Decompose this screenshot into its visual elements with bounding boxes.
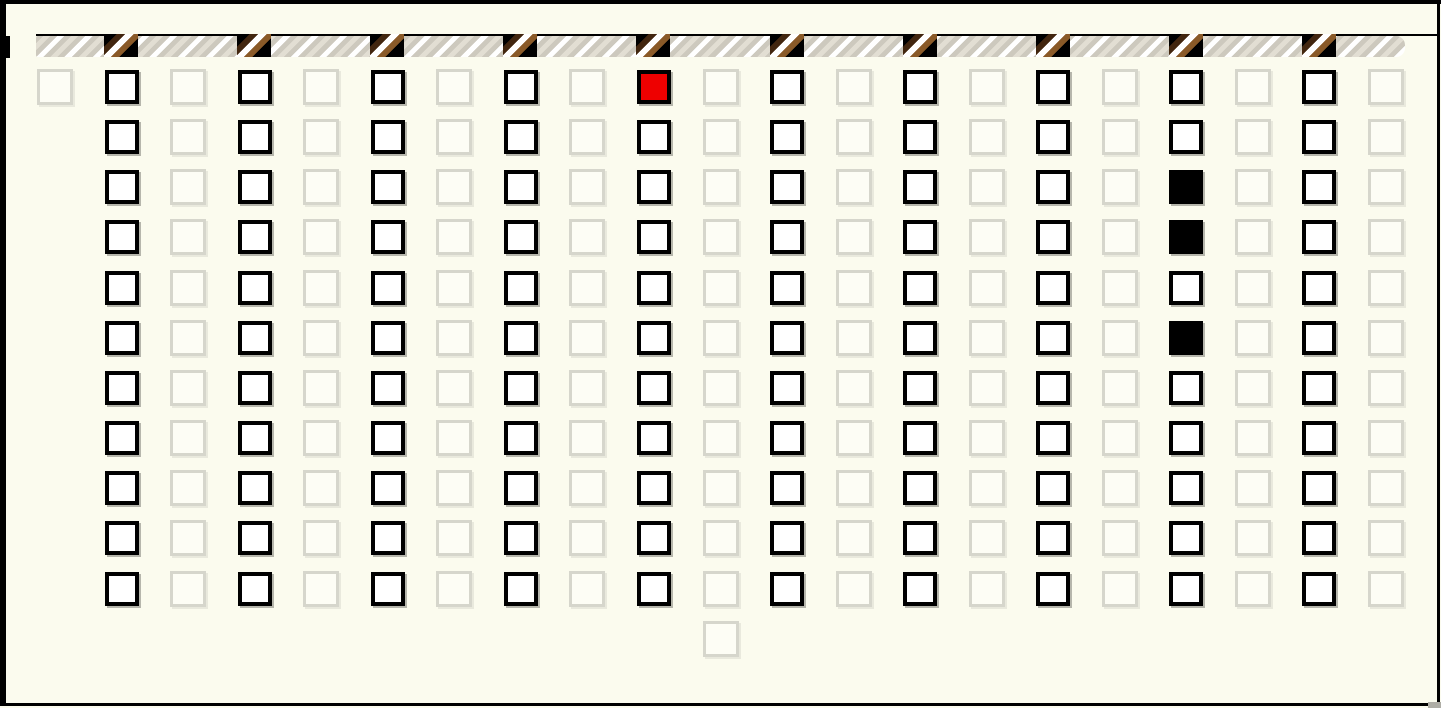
- active-cell[interactable]: [637, 371, 671, 405]
- inactive-cell[interactable]: [569, 370, 605, 406]
- active-cell[interactable]: [903, 471, 937, 505]
- inactive-cell[interactable]: [170, 370, 206, 406]
- active-cell[interactable]: [1169, 572, 1203, 606]
- inactive-cell[interactable]: [170, 219, 206, 255]
- active-cell[interactable]: [903, 220, 937, 254]
- inactive-cell[interactable]: [969, 119, 1005, 155]
- inactive-cell[interactable]: [1102, 470, 1138, 506]
- inactive-cell[interactable]: [969, 470, 1005, 506]
- active-cell[interactable]: [1036, 170, 1070, 204]
- active-cell[interactable]: [238, 521, 272, 555]
- active-cell[interactable]: [770, 120, 804, 154]
- dispenser-slot: [770, 34, 804, 57]
- inactive-cell[interactable]: [836, 169, 872, 205]
- inactive-cell[interactable]: [1235, 520, 1271, 556]
- active-cell[interactable]: [504, 421, 538, 455]
- active-cell[interactable]: [371, 70, 405, 104]
- dispenser-slot: [104, 34, 138, 57]
- active-cell[interactable]: [504, 120, 538, 154]
- active-cell[interactable]: [637, 271, 671, 305]
- active-cell[interactable]: [1169, 421, 1203, 455]
- corner-notch: [1428, 702, 1441, 708]
- inactive-cell[interactable]: [569, 571, 605, 607]
- inactive-cell[interactable]: [1102, 320, 1138, 356]
- inactive-cell[interactable]: [703, 420, 739, 456]
- active-cell[interactable]: [637, 521, 671, 555]
- active-cell[interactable]: [1036, 421, 1070, 455]
- inactive-cell[interactable]: [569, 169, 605, 205]
- inactive-cell[interactable]: [303, 69, 339, 105]
- inactive-cell[interactable]: [170, 470, 206, 506]
- inactive-cell[interactable]: [1235, 219, 1271, 255]
- active-cell[interactable]: [504, 471, 538, 505]
- inactive-cell[interactable]: [703, 270, 739, 306]
- inactive-cell[interactable]: [436, 420, 472, 456]
- inactive-cell[interactable]: [1235, 169, 1271, 205]
- inactive-cell[interactable]: [1102, 370, 1138, 406]
- inactive-cell[interactable]: [436, 470, 472, 506]
- active-cell[interactable]: [903, 70, 937, 104]
- inactive-cell[interactable]: [703, 520, 739, 556]
- active-cell[interactable]: [770, 70, 804, 104]
- inactive-cell[interactable]: [1235, 320, 1271, 356]
- inactive-cell[interactable]: [1235, 69, 1271, 105]
- playfield: [0, 0, 1441, 708]
- inactive-cell[interactable]: [1368, 571, 1404, 607]
- active-cell[interactable]: [504, 321, 538, 355]
- inactive-cell[interactable]: [303, 169, 339, 205]
- filled-black-cell[interactable]: [1169, 170, 1203, 204]
- inactive-cell[interactable]: [1368, 169, 1404, 205]
- active-cell[interactable]: [637, 572, 671, 606]
- inactive-cell[interactable]: [436, 119, 472, 155]
- inactive-cell[interactable]: [170, 169, 206, 205]
- inactive-cell[interactable]: [569, 69, 605, 105]
- inactive-cell[interactable]: [37, 69, 73, 105]
- inactive-cell[interactable]: [303, 571, 339, 607]
- app-window: [0, 0, 1441, 708]
- inactive-cell[interactable]: [1368, 420, 1404, 456]
- dispenser-slot: [237, 34, 271, 57]
- inactive-cell[interactable]: [170, 571, 206, 607]
- inactive-cell[interactable]: [1368, 320, 1404, 356]
- active-cell[interactable]: [1302, 70, 1336, 104]
- active-cell[interactable]: [1169, 521, 1203, 555]
- active-cell[interactable]: [105, 321, 139, 355]
- active-cell[interactable]: [238, 70, 272, 104]
- active-cell[interactable]: [371, 371, 405, 405]
- active-cell[interactable]: [770, 572, 804, 606]
- inactive-cell[interactable]: [703, 219, 739, 255]
- inactive-cell[interactable]: [969, 69, 1005, 105]
- active-cell[interactable]: [504, 271, 538, 305]
- active-cell[interactable]: [770, 421, 804, 455]
- inactive-cell[interactable]: [569, 119, 605, 155]
- inactive-cell[interactable]: [436, 270, 472, 306]
- inactive-cell[interactable]: [170, 320, 206, 356]
- active-cell[interactable]: [1302, 170, 1336, 204]
- active-cell[interactable]: [1302, 421, 1336, 455]
- active-cell[interactable]: [1302, 371, 1336, 405]
- inactive-cell[interactable]: [1235, 370, 1271, 406]
- window-frame-top: [0, 0, 1441, 4]
- inactive-cell[interactable]: [303, 270, 339, 306]
- active-cell[interactable]: [238, 471, 272, 505]
- active-cell[interactable]: [504, 220, 538, 254]
- active-cell[interactable]: [1036, 471, 1070, 505]
- active-cell[interactable]: [637, 170, 671, 204]
- active-cell[interactable]: [1302, 521, 1336, 555]
- active-cell[interactable]: [238, 271, 272, 305]
- inactive-cell[interactable]: [836, 320, 872, 356]
- active-cell[interactable]: [1036, 220, 1070, 254]
- active-cell[interactable]: [238, 170, 272, 204]
- active-cell[interactable]: [1036, 321, 1070, 355]
- inactive-cell[interactable]: [703, 119, 739, 155]
- inactive-cell[interactable]: [703, 470, 739, 506]
- active-cell[interactable]: [1036, 70, 1070, 104]
- inactive-cell[interactable]: [170, 420, 206, 456]
- inactive-cell[interactable]: [1102, 69, 1138, 105]
- active-cell[interactable]: [238, 421, 272, 455]
- active-cell[interactable]: [504, 371, 538, 405]
- dispenser-slot: [1036, 34, 1070, 57]
- window-frame-bottom: [0, 703, 1438, 706]
- inactive-cell[interactable]: [569, 270, 605, 306]
- active-cell[interactable]: [637, 421, 671, 455]
- active-cell[interactable]: [1036, 120, 1070, 154]
- inactive-cell[interactable]: [303, 520, 339, 556]
- active-cell[interactable]: [770, 271, 804, 305]
- active-cell[interactable]: [637, 220, 671, 254]
- inactive-cell[interactable]: [303, 470, 339, 506]
- inactive-cell[interactable]: [969, 270, 1005, 306]
- inactive-cell[interactable]: [703, 69, 739, 105]
- inactive-cell[interactable]: [569, 320, 605, 356]
- active-cell[interactable]: [770, 371, 804, 405]
- inactive-cell[interactable]: [1368, 470, 1404, 506]
- inactive-cell[interactable]: [436, 69, 472, 105]
- active-cell[interactable]: [504, 70, 538, 104]
- inactive-cell[interactable]: [1368, 270, 1404, 306]
- dispenser-slot: [370, 34, 404, 57]
- active-cell[interactable]: [1169, 70, 1203, 104]
- inactive-cell[interactable]: [569, 219, 605, 255]
- active-cell[interactable]: [1169, 471, 1203, 505]
- active-cell[interactable]: [1169, 271, 1203, 305]
- inactive-cell[interactable]: [170, 270, 206, 306]
- inactive-cell[interactable]: [569, 470, 605, 506]
- inactive-cell[interactable]: [703, 370, 739, 406]
- active-cell[interactable]: [105, 220, 139, 254]
- active-cell[interactable]: [371, 572, 405, 606]
- active-cell[interactable]: [637, 471, 671, 505]
- active-cell[interactable]: [105, 572, 139, 606]
- inactive-cell[interactable]: [303, 219, 339, 255]
- inactive-cell[interactable]: [969, 219, 1005, 255]
- active-cell[interactable]: [903, 421, 937, 455]
- active-cell[interactable]: [637, 120, 671, 154]
- inactive-cell[interactable]: [836, 470, 872, 506]
- filled-black-cell[interactable]: [1169, 321, 1203, 355]
- active-cell[interactable]: [105, 471, 139, 505]
- inactive-cell[interactable]: [1368, 69, 1404, 105]
- active-cell[interactable]: [238, 572, 272, 606]
- inactive-cell[interactable]: [969, 520, 1005, 556]
- active-cell[interactable]: [1302, 271, 1336, 305]
- filled-black-cell[interactable]: [1169, 220, 1203, 254]
- active-cell[interactable]: [1302, 471, 1336, 505]
- active-cell[interactable]: [238, 220, 272, 254]
- dispenser-slot: [1169, 34, 1203, 57]
- inactive-cell[interactable]: [836, 571, 872, 607]
- active-cell[interactable]: [770, 471, 804, 505]
- active-cell[interactable]: [371, 220, 405, 254]
- dispenser-slot: [903, 34, 937, 57]
- inactive-cell[interactable]: [303, 370, 339, 406]
- inactive-cell[interactable]: [969, 420, 1005, 456]
- red-piece-cell[interactable]: [637, 70, 671, 104]
- active-cell[interactable]: [770, 321, 804, 355]
- active-cell[interactable]: [770, 521, 804, 555]
- inactive-cell[interactable]: [1235, 420, 1271, 456]
- inactive-cell[interactable]: [1102, 270, 1138, 306]
- inactive-cell[interactable]: [1102, 169, 1138, 205]
- inactive-cell[interactable]: [436, 169, 472, 205]
- inactive-cell[interactable]: [836, 520, 872, 556]
- active-cell[interactable]: [371, 271, 405, 305]
- inactive-cell[interactable]: [436, 219, 472, 255]
- active-cell[interactable]: [1302, 321, 1336, 355]
- active-cell[interactable]: [770, 220, 804, 254]
- window-frame-right: [1437, 0, 1440, 702]
- bar-left-stub: [6, 36, 10, 58]
- inactive-cell[interactable]: [1368, 520, 1404, 556]
- active-cell[interactable]: [1036, 521, 1070, 555]
- active-cell[interactable]: [903, 321, 937, 355]
- active-cell[interactable]: [371, 120, 405, 154]
- inactive-cell[interactable]: [1102, 571, 1138, 607]
- active-cell[interactable]: [238, 371, 272, 405]
- active-cell[interactable]: [238, 321, 272, 355]
- inactive-cell[interactable]: [1368, 219, 1404, 255]
- inactive-cell[interactable]: [969, 169, 1005, 205]
- inactive-cell[interactable]: [436, 370, 472, 406]
- inactive-cell[interactable]: [969, 320, 1005, 356]
- inactive-cell[interactable]: [303, 320, 339, 356]
- active-cell[interactable]: [903, 170, 937, 204]
- inactive-cell[interactable]: [969, 370, 1005, 406]
- active-cell[interactable]: [105, 70, 139, 104]
- inactive-cell[interactable]: [1235, 119, 1271, 155]
- active-cell[interactable]: [770, 170, 804, 204]
- active-cell[interactable]: [105, 271, 139, 305]
- active-cell[interactable]: [1036, 371, 1070, 405]
- dispenser-slot: [636, 34, 670, 57]
- inactive-cell[interactable]: [703, 169, 739, 205]
- inactive-cell[interactable]: [569, 420, 605, 456]
- inactive-cell[interactable]: [1235, 470, 1271, 506]
- active-cell[interactable]: [105, 421, 139, 455]
- dispenser-slot: [1302, 34, 1336, 57]
- active-cell[interactable]: [1302, 120, 1336, 154]
- active-cell[interactable]: [903, 572, 937, 606]
- active-cell[interactable]: [105, 521, 139, 555]
- active-cell[interactable]: [105, 120, 139, 154]
- inactive-cell[interactable]: [436, 320, 472, 356]
- dispenser-slot: [503, 34, 537, 57]
- active-cell[interactable]: [1036, 572, 1070, 606]
- active-cell[interactable]: [504, 170, 538, 204]
- inactive-cell[interactable]: [703, 571, 739, 607]
- inactive-cell[interactable]: [969, 571, 1005, 607]
- inactive-cell[interactable]: [436, 571, 472, 607]
- active-cell[interactable]: [637, 321, 671, 355]
- inactive-cell[interactable]: [836, 420, 872, 456]
- inactive-cell[interactable]: [303, 119, 339, 155]
- active-cell[interactable]: [1302, 572, 1336, 606]
- inactive-cell[interactable]: [836, 119, 872, 155]
- active-cell[interactable]: [371, 521, 405, 555]
- active-cell[interactable]: [371, 421, 405, 455]
- inactive-cell[interactable]: [836, 370, 872, 406]
- inactive-cell[interactable]: [836, 219, 872, 255]
- active-cell[interactable]: [1169, 371, 1203, 405]
- active-cell[interactable]: [371, 170, 405, 204]
- inactive-cell[interactable]: [1235, 571, 1271, 607]
- inactive-cell[interactable]: [1102, 520, 1138, 556]
- active-cell[interactable]: [1169, 120, 1203, 154]
- inactive-cell[interactable]: [836, 270, 872, 306]
- active-cell[interactable]: [371, 321, 405, 355]
- active-cell[interactable]: [903, 521, 937, 555]
- inactive-cell[interactable]: [170, 69, 206, 105]
- window-frame-left: [0, 0, 6, 706]
- inactive-cell[interactable]: [1368, 370, 1404, 406]
- inactive-cell[interactable]: [703, 320, 739, 356]
- active-cell[interactable]: [1302, 220, 1336, 254]
- inactive-cell[interactable]: [170, 119, 206, 155]
- inactive-cell[interactable]: [303, 420, 339, 456]
- active-cell[interactable]: [105, 170, 139, 204]
- inactive-cell[interactable]: [436, 520, 472, 556]
- active-cell[interactable]: [903, 271, 937, 305]
- inactive-cell[interactable]: [569, 520, 605, 556]
- inactive-cell[interactable]: [703, 621, 739, 657]
- inactive-cell[interactable]: [1102, 119, 1138, 155]
- inactive-cell[interactable]: [1102, 420, 1138, 456]
- active-cell[interactable]: [105, 371, 139, 405]
- active-cell[interactable]: [504, 572, 538, 606]
- active-cell[interactable]: [903, 120, 937, 154]
- inactive-cell[interactable]: [1102, 219, 1138, 255]
- active-cell[interactable]: [504, 521, 538, 555]
- inactive-cell[interactable]: [1368, 119, 1404, 155]
- active-cell[interactable]: [238, 120, 272, 154]
- inactive-cell[interactable]: [836, 69, 872, 105]
- inactive-cell[interactable]: [1235, 270, 1271, 306]
- inactive-cell[interactable]: [170, 520, 206, 556]
- active-cell[interactable]: [371, 471, 405, 505]
- active-cell[interactable]: [1036, 271, 1070, 305]
- active-cell[interactable]: [903, 371, 937, 405]
